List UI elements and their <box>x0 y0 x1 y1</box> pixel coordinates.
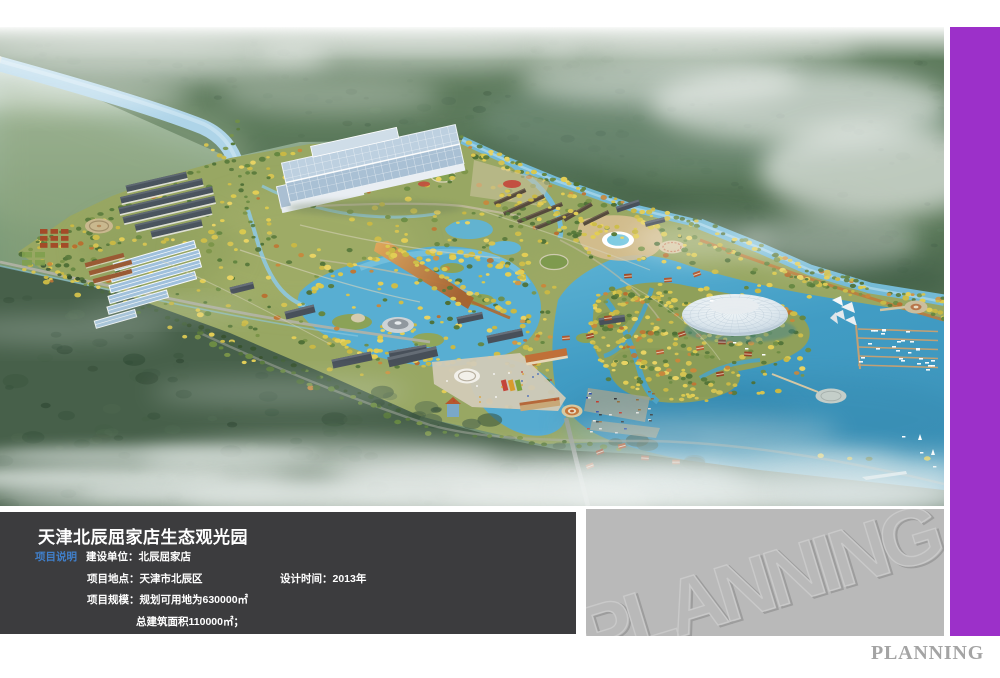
svg-text:PLANNING: PLANNING <box>586 509 944 636</box>
